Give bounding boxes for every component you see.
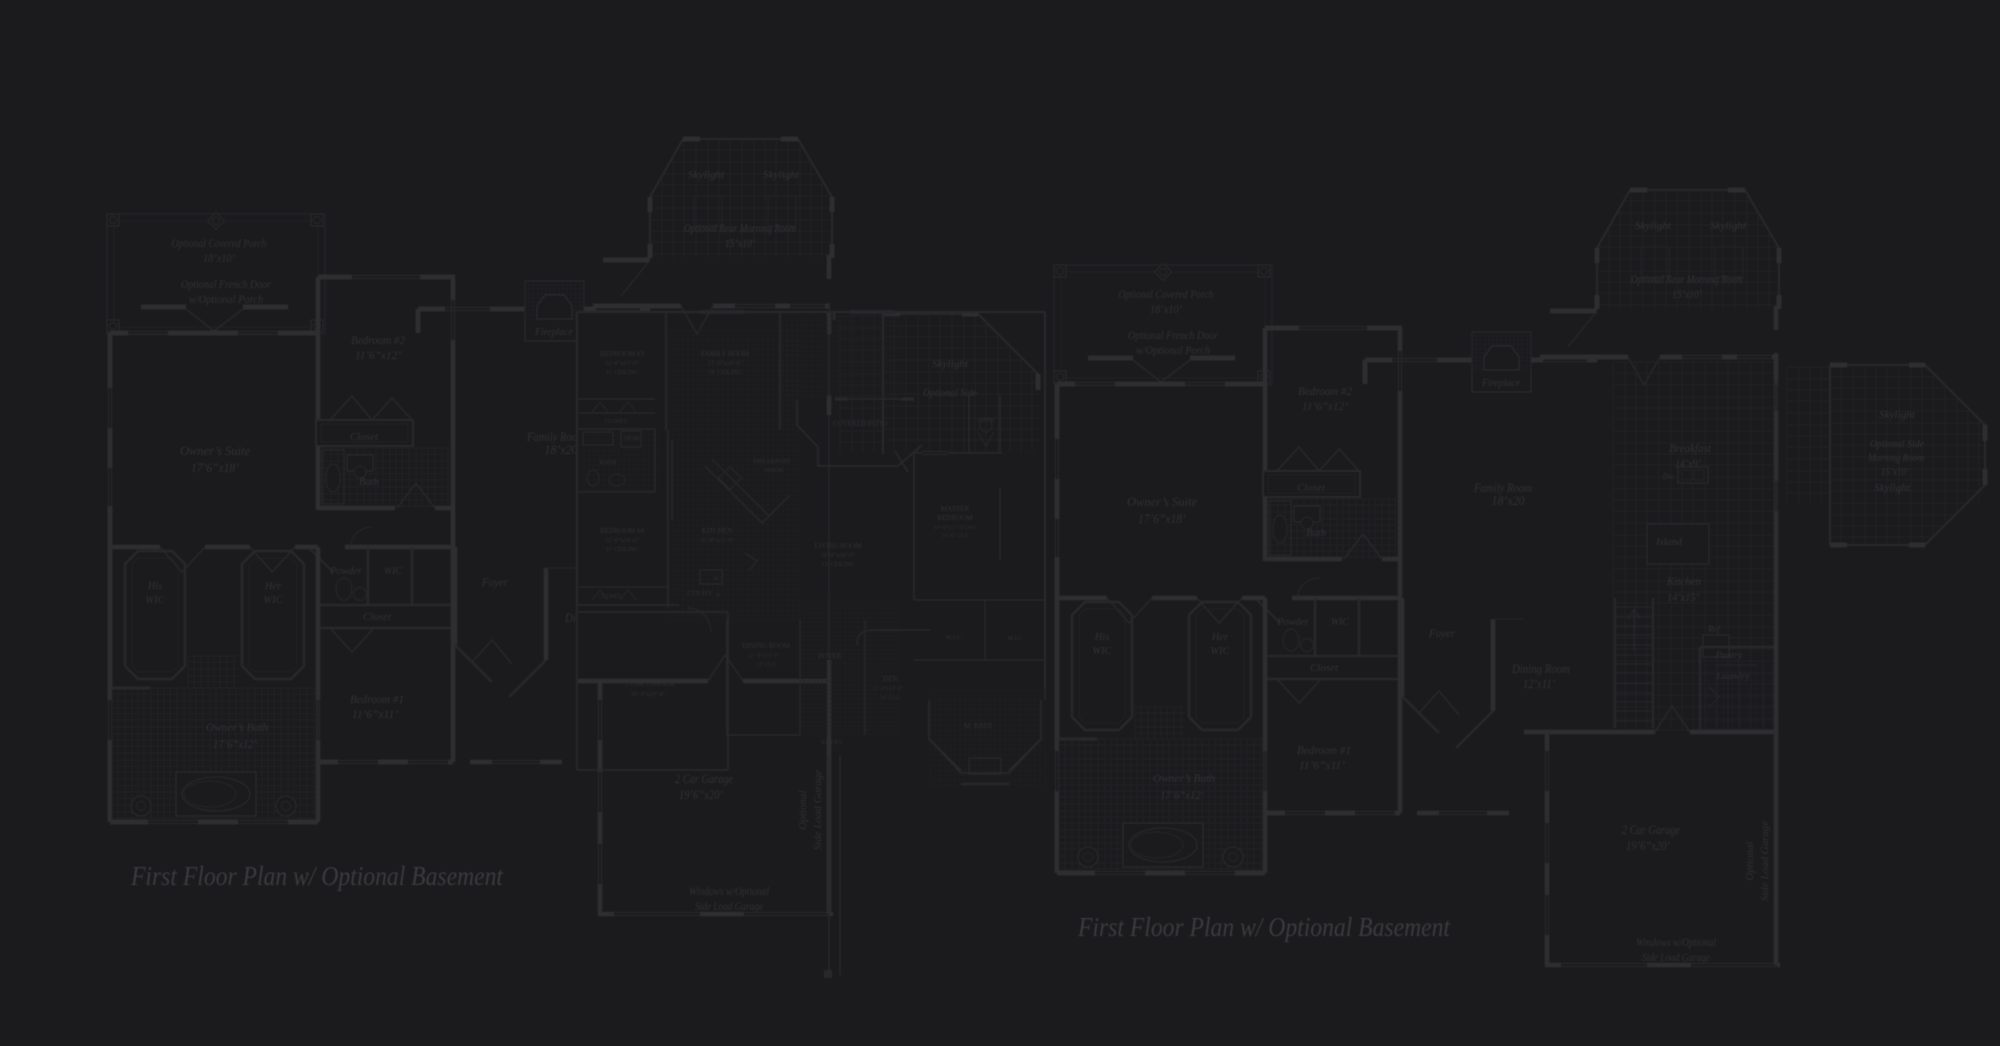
svg-text:M. BATH: M. BATH — [964, 722, 992, 730]
svg-text:17’-0”x19’-6”: 17’-0”x19’-6” — [708, 361, 743, 367]
svg-text:MASTER: MASTER — [941, 505, 970, 513]
svg-text:DINING ROOM: DINING ROOM — [742, 642, 790, 650]
svg-text:11’ CEILING: 11’ CEILING — [606, 547, 639, 553]
svg-text:12’ CEILING: 12’ CEILING — [821, 562, 855, 568]
svg-text:KITCHEN: KITCHEN — [702, 527, 733, 535]
svg-text:UTILITY: UTILITY — [687, 590, 713, 597]
svg-text:BEDROOM #3: BEDROOM #3 — [600, 350, 644, 358]
svg-text:D: D — [716, 593, 720, 599]
svg-text:W.I.C.: W.I.C. — [1008, 635, 1025, 642]
svg-text:DESK: DESK — [624, 436, 640, 442]
svg-text:BEDROOM #4: BEDROOM #4 — [600, 527, 644, 535]
svg-text:W: W — [713, 576, 719, 582]
svg-text:CLOSET: CLOSET — [605, 419, 628, 425]
svg-text:NOOK: NOOK — [765, 467, 784, 474]
svg-text:16’-0”x18’-0”: 16’-0”x18’-0” — [821, 553, 856, 559]
svg-text:BREAKFAST: BREAKFAST — [753, 458, 790, 465]
svg-text:CLOSET: CLOSET — [599, 594, 622, 600]
svg-text:3 CAR GARAGE: 3 CAR GARAGE — [625, 680, 676, 688]
svg-text:11’ CEILING: 11’ CEILING — [606, 370, 639, 376]
svg-text:10’ CLG: 10’ CLG — [880, 695, 899, 701]
svg-text:12’-0”x13’-0”: 12’-0”x13’-0” — [605, 361, 640, 367]
svg-text:11’-0”x13’-0”: 11’-0”x13’-0” — [748, 653, 780, 659]
svg-text:11’-8”x13’-0”: 11’-8”x13’-0” — [700, 538, 734, 544]
svg-text:DEN: DEN — [883, 675, 897, 683]
svg-text:11’-0”x12’-0”: 11’-0”x12’-0” — [872, 686, 904, 692]
svg-text:13’ CLG: 13’ CLG — [756, 662, 775, 668]
svg-text:20’-0”x29’-8”: 20’-0”x29’-8” — [631, 692, 666, 698]
svg-text:BATH: BATH — [600, 459, 617, 466]
svg-text:13’-0”x17’-0”(18’): 13’-0”x17’-0”(18’) — [934, 524, 977, 531]
svg-text:FOYER: FOYER — [819, 652, 842, 660]
svg-text:W.I.C.: W.I.C. — [946, 634, 963, 641]
svg-text:12’-0”x14’-6”: 12’-0”x14’-6” — [605, 538, 640, 544]
svg-text:ENTRY: ENTRY — [821, 739, 843, 746]
svg-text:10’-0” CLG: 10’-0” CLG — [942, 533, 969, 539]
svg-text:COVERED PATIO: COVERED PATIO — [833, 420, 887, 428]
svg-text:BEDROOM: BEDROOM — [937, 514, 973, 522]
svg-text:LIVING ROOM: LIVING ROOM — [815, 542, 863, 550]
svg-text:10’ CEILING: 10’ CEILING — [708, 370, 742, 376]
svg-text:FAMILY ROOM: FAMILY ROOM — [701, 350, 750, 358]
